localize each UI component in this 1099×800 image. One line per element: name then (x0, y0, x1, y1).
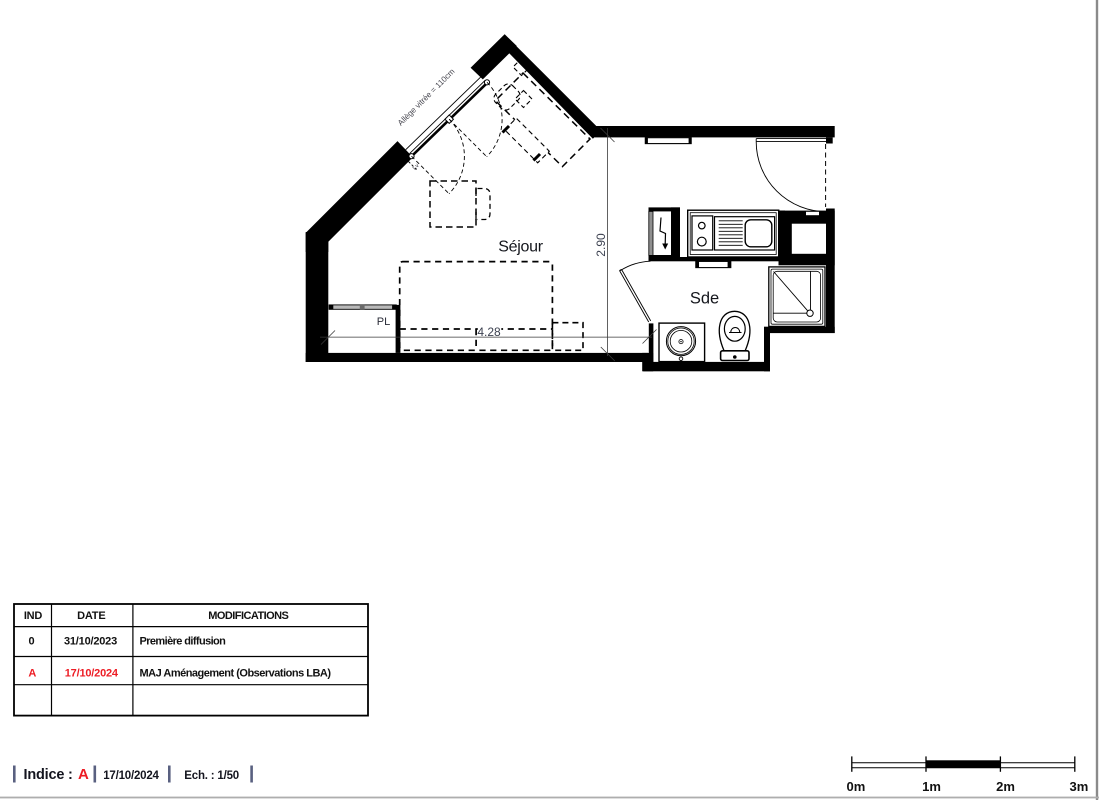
svg-text:Indice :: Indice : (24, 767, 73, 783)
svg-text:31/10/2023: 31/10/2023 (64, 636, 117, 648)
svg-text:Séjour: Séjour (498, 239, 543, 256)
svg-text:0m: 0m (847, 779, 866, 794)
svg-text:Ech. : 1/50: Ech. : 1/50 (184, 770, 239, 782)
svg-text:A: A (28, 668, 36, 680)
svg-text:3m: 3m (1070, 779, 1089, 794)
svg-text:IND: IND (24, 610, 43, 622)
svg-text:A: A (78, 766, 89, 783)
svg-text:0: 0 (29, 636, 35, 648)
svg-text:PL: PL (377, 316, 390, 328)
svg-text:MODIFICATIONS: MODIFICATIONS (208, 610, 288, 622)
svg-text:Sde: Sde (690, 290, 719, 308)
svg-text:2.90: 2.90 (594, 233, 608, 257)
svg-text:2m: 2m (996, 779, 1015, 794)
svg-text:DATE: DATE (77, 610, 105, 622)
svg-text:17/10/2024: 17/10/2024 (103, 770, 159, 782)
svg-text:MAJ Aménagement (Observations: MAJ Aménagement (Observations LBA) (140, 668, 332, 680)
svg-text:Première diffusion: Première diffusion (140, 636, 227, 648)
svg-text:4.28: 4.28 (477, 325, 501, 339)
svg-text:17/10/2024: 17/10/2024 (65, 668, 119, 680)
svg-text:1m: 1m (922, 779, 941, 794)
